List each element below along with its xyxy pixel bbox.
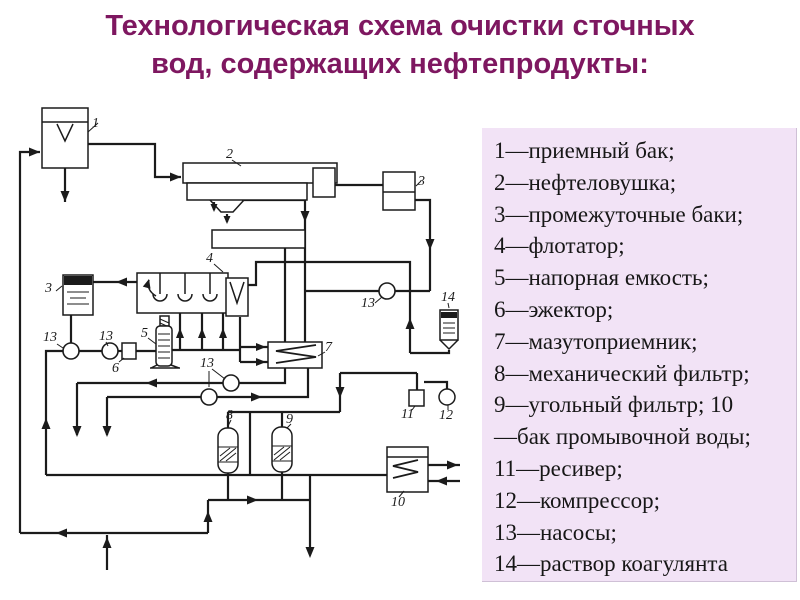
legend-line: 5—напорная емкость; xyxy=(494,262,792,294)
ejector-6 xyxy=(122,343,136,359)
legend-line: 8—механический фильтр; xyxy=(494,358,792,390)
legend-panel: 1—приемный бак;2—нефтеловушка;3—промежут… xyxy=(482,128,797,582)
tank-1 xyxy=(42,108,88,168)
process-flow-diagram: 12334567891011121313131314 xyxy=(0,95,482,600)
page-title-line2: вод, содержащих нефтепродукты: xyxy=(0,46,800,84)
page-title: Технологическая схема очистки сточных во… xyxy=(0,8,800,83)
component-number-label: 14 xyxy=(441,290,455,305)
legend-line: 1—приемный бак; xyxy=(494,135,792,167)
legend-line: 9—угольный фильтр; 10 xyxy=(494,389,792,421)
component-number-label: 3 xyxy=(44,281,52,296)
page-title-line1: Технологическая схема очистки сточных xyxy=(0,8,800,46)
legend-line: 4—флотатор; xyxy=(494,230,792,262)
component-number-label: 6 xyxy=(112,361,119,376)
component-number-label: 13 xyxy=(200,356,214,371)
pump-13 xyxy=(379,283,395,299)
intermediate-tank-3-left xyxy=(63,275,93,315)
receiver-11 xyxy=(409,390,424,406)
slide: Технологическая схема очистки сточных во… xyxy=(0,0,800,600)
intermediate-tank-3-top xyxy=(383,172,415,210)
wash-water-tank-10 xyxy=(387,447,428,492)
component-number-label: 7 xyxy=(325,340,333,355)
component-number-label: 13 xyxy=(361,296,375,311)
legend-line: 3—промежуточные баки; xyxy=(494,199,792,231)
pump-13 xyxy=(102,343,118,359)
pump-13 xyxy=(63,343,79,359)
legend-line: 11—ресивер; xyxy=(494,453,792,485)
component-number-label: 2 xyxy=(226,147,233,162)
component-number-label: 13 xyxy=(43,330,57,345)
component-number-label: 4 xyxy=(206,251,213,266)
mechanical-filter-8 xyxy=(218,428,238,473)
pressure-vessel-5 xyxy=(150,316,180,368)
legend-line: 12—компрессор; xyxy=(494,485,792,517)
component-number-label: 12 xyxy=(439,408,453,423)
component-number-label: 13 xyxy=(99,329,113,344)
oil-receiver-7 xyxy=(268,342,322,368)
compressor-12 xyxy=(439,389,455,405)
legend-line: 6—эжектор; xyxy=(494,294,792,326)
component-number-label: 9 xyxy=(286,412,293,427)
carbon-filter-9 xyxy=(272,427,292,472)
component-number-label: 5 xyxy=(141,326,148,341)
pump-13 xyxy=(201,389,217,405)
component-number-label: 11 xyxy=(401,407,414,422)
legend-line: 2—нефтеловушка; xyxy=(494,167,792,199)
legend-line: —бак промывочной воды; xyxy=(494,421,792,453)
component-number-label: 8 xyxy=(226,408,233,423)
component-number-label: 3 xyxy=(417,174,425,189)
legend-line: 13—насосы; xyxy=(494,517,792,549)
legend-line: 7—мазутоприемник; xyxy=(494,326,792,358)
component-number-label: 1 xyxy=(92,116,99,131)
oil-trap-2 xyxy=(183,163,337,212)
collector xyxy=(212,230,305,248)
coagulant-vessel-14 xyxy=(440,310,458,349)
component-number-label: 10 xyxy=(391,495,405,510)
legend-line: 14—раствор коагулянта xyxy=(494,548,792,580)
pump-13 xyxy=(223,375,239,391)
flotator-4 xyxy=(137,273,248,316)
